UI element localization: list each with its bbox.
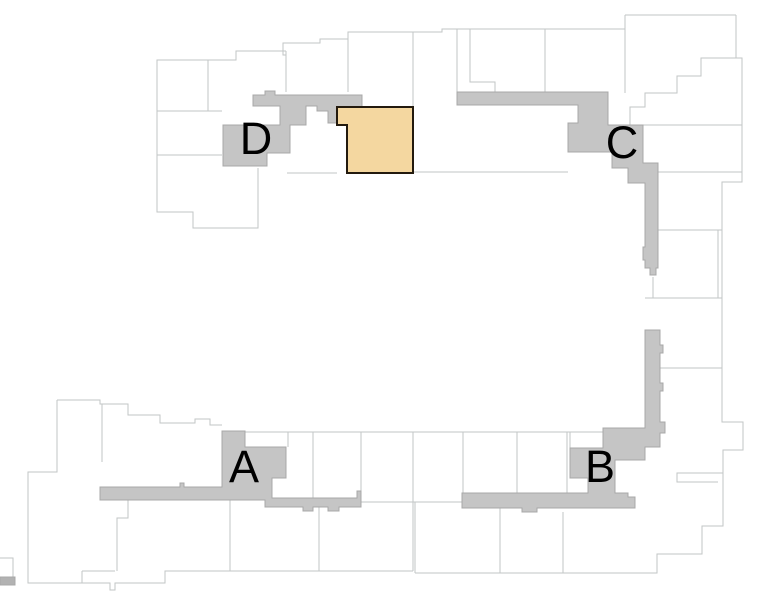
building-d-group: D	[223, 91, 362, 166]
unit-outline	[677, 473, 723, 482]
unit-outline	[470, 29, 495, 92]
edge-building-fragment	[0, 577, 15, 585]
unit-outline	[117, 500, 128, 571]
unit-outline	[722, 15, 743, 473]
unit-outline	[57, 400, 222, 425]
building-b-label[interactable]: B	[585, 441, 615, 492]
building-a-label[interactable]: A	[229, 441, 259, 492]
selected-unit[interactable]	[337, 107, 413, 173]
site-plan-map: ABCD	[0, 0, 759, 591]
building-c-group: C	[457, 92, 658, 275]
building-c-label[interactable]: C	[606, 117, 639, 168]
unit-outline	[415, 473, 723, 573]
unit-outline	[413, 29, 625, 32]
site-plan: ABCD	[0, 0, 759, 591]
building-a-group: A	[100, 431, 361, 511]
building-b-corridor[interactable]	[462, 330, 665, 512]
unit-outline	[0, 558, 13, 577]
building-d-label[interactable]: D	[240, 113, 273, 164]
unit-outline	[608, 58, 736, 125]
building-b-group: B	[462, 330, 665, 512]
